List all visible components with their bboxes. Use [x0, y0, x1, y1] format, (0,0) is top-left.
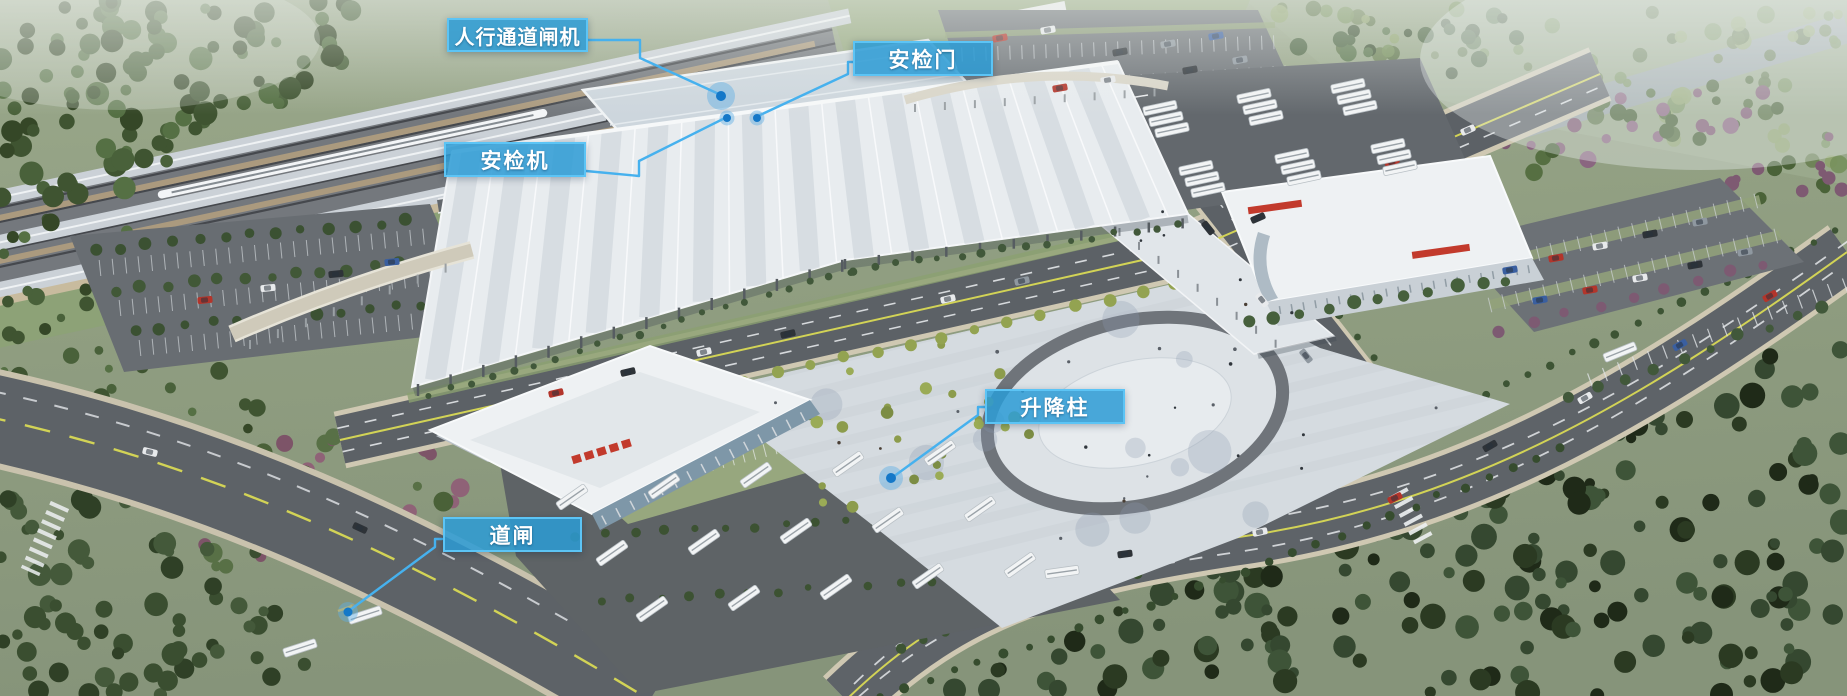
scene-illustration — [0, 0, 1847, 696]
callout-barrier-gate[interactable]: 道闸 — [443, 517, 582, 552]
station-aerial-annotated-render: 人行通道闸机 安检门 安检机 升降柱 道闸 — [0, 0, 1847, 696]
callout-lifting-bollard[interactable]: 升降柱 — [985, 389, 1125, 424]
callout-security-scanner[interactable]: 安检机 — [444, 142, 586, 177]
callout-security-door[interactable]: 安检门 — [853, 41, 993, 76]
callout-pedestrian-channel-gate[interactable]: 人行通道闸机 — [447, 18, 588, 52]
